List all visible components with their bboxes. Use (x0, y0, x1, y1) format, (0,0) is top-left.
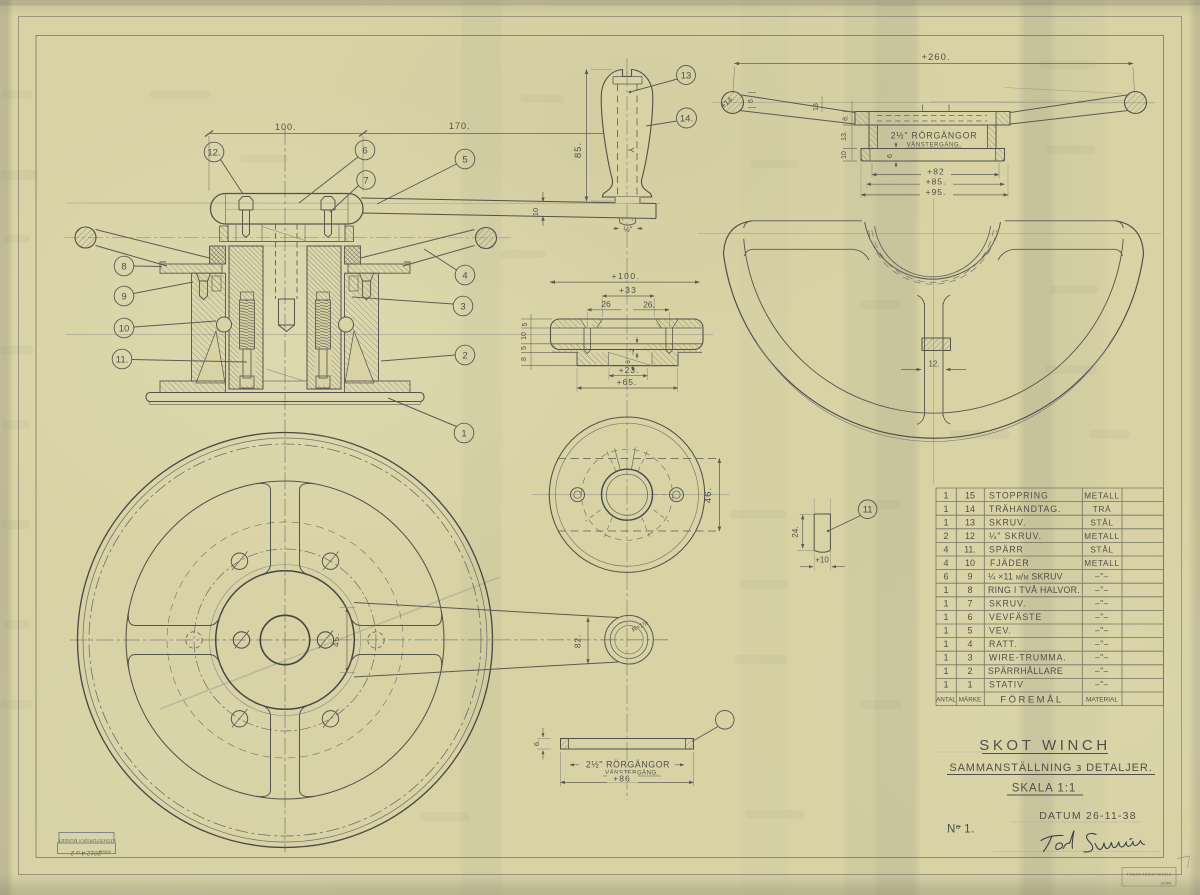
svg-text:METALL: METALL (1084, 492, 1119, 501)
svg-text:10: 10 (119, 324, 130, 335)
svg-text:4: 4 (462, 271, 467, 282)
svg-text:12.: 12. (207, 148, 220, 159)
svg-text:13: 13 (965, 518, 975, 528)
svg-text:12.: 12. (928, 360, 939, 369)
svg-text:DATUM 26-11-38: DATUM 26-11-38 (1039, 810, 1137, 822)
svg-text:1: 1 (943, 653, 948, 663)
svg-text:SPÄRR: SPÄRR (989, 545, 1024, 555)
svg-text:+82: +82 (927, 167, 944, 177)
svg-text:–"–: –"– (1095, 626, 1109, 635)
svg-text:RING I TVÅ HALVOR.: RING I TVÅ HALVOR. (988, 585, 1080, 595)
svg-text:6: 6 (943, 572, 948, 582)
svg-text:11.: 11. (964, 545, 976, 555)
svg-text:No 1.: No 1. (947, 822, 975, 836)
svg-text:RATT.: RATT. (989, 639, 1017, 649)
svg-text:–"–: –"– (1095, 572, 1109, 581)
svg-text:SKOT WINCH: SKOT WINCH (979, 737, 1111, 754)
svg-text:4: 4 (943, 558, 948, 568)
svg-text:15: 15 (965, 491, 975, 501)
svg-text:¼ ×11 M/M SKRUV: ¼ ×11 M/M SKRUV (988, 572, 1063, 582)
svg-text:TRÄHANDTAG.: TRÄHANDTAG. (989, 504, 1061, 514)
svg-text:3xHPA: 3xHPA (1161, 882, 1173, 886)
svg-text:2½" RÖRGÄNGOR: 2½" RÖRGÄNGOR (891, 131, 978, 141)
svg-text:1: 1 (943, 626, 948, 636)
svg-text:6: 6 (967, 612, 972, 622)
svg-text:1: 1 (943, 599, 948, 609)
svg-text:6: 6 (748, 99, 755, 103)
svg-text:TJSUM AKSIKTSHÖL2: TJSUM AKSIKTSHÖL2 (1127, 872, 1173, 877)
svg-text:11.: 11. (116, 355, 129, 366)
svg-text:1: 1 (967, 680, 972, 690)
svg-text:–"–: –"– (1095, 586, 1109, 595)
svg-text:1: 1 (943, 504, 948, 514)
svg-text:45.: 45. (331, 633, 341, 647)
svg-text:2: 2 (462, 351, 467, 362)
svg-text:15: 15 (813, 103, 820, 111)
svg-text:–"–: –"– (1095, 653, 1109, 662)
svg-text:1: 1 (943, 639, 948, 649)
svg-text:6: 6 (362, 146, 367, 157)
svg-text:8: 8 (121, 262, 126, 273)
svg-text:METALL: METALL (1084, 559, 1119, 568)
svg-text:STATIV: STATIV (989, 680, 1024, 690)
svg-text:4: 4 (967, 639, 972, 649)
svg-text:1: 1 (943, 518, 948, 528)
svg-text:14.: 14. (680, 114, 693, 125)
svg-text:6.: 6. (532, 740, 541, 746)
svg-text:5: 5 (462, 155, 467, 166)
svg-text:7: 7 (967, 599, 972, 609)
svg-text:1: 1 (943, 491, 948, 501)
svg-text:MATERIAL: MATERIAL (1086, 697, 1118, 704)
svg-text:SKRUV.: SKRUV. (989, 599, 1026, 609)
svg-text:1: 1 (943, 666, 948, 676)
svg-text:1: 1 (461, 429, 466, 440)
svg-text:METALL: METALL (1084, 532, 1119, 541)
svg-text:FJÄDER: FJÄDER (990, 558, 1030, 568)
svg-text:TRÄ: TRÄ (1093, 504, 1111, 514)
svg-text:3: 3 (460, 302, 465, 313)
svg-text:26.: 26. (643, 300, 655, 310)
svg-text:+33: +33 (619, 285, 637, 295)
svg-text:WIRE-TRUMMA.: WIRE-TRUMMA. (989, 653, 1067, 663)
svg-text:¼" SKRUV.: ¼" SKRUV. (989, 531, 1042, 541)
svg-text:9: 9 (121, 292, 126, 303)
svg-text:8: 8 (521, 357, 528, 361)
svg-text:VÄNSTERGÄNG.: VÄNSTERGÄNG. (907, 142, 962, 149)
svg-text:4: 4 (943, 545, 948, 555)
svg-text:+65.: +65. (617, 377, 638, 387)
svg-text:5: 5 (522, 322, 529, 326)
svg-text:2: 2 (943, 531, 948, 541)
svg-text:2½" RÖRGÄNGOR: 2½" RÖRGÄNGOR (586, 760, 670, 770)
svg-text:3: 3 (967, 653, 972, 663)
svg-text:10: 10 (521, 332, 528, 340)
svg-text:9: 9 (967, 572, 972, 582)
svg-text:MÄRKE: MÄRKE (959, 696, 981, 704)
svg-text:1: 1 (943, 585, 948, 595)
svg-text:14: 14 (965, 504, 975, 514)
svg-text:+86: +86 (613, 774, 630, 784)
svg-text:SAMMANSTÄLLNING з DETALJER.: SAMMANSTÄLLNING з DETALJER. (949, 762, 1152, 774)
svg-text:26: 26 (601, 299, 611, 309)
svg-text:–"–: –"– (1095, 667, 1109, 676)
svg-text:2: 2 (967, 666, 972, 676)
svg-text:2: 2 (629, 348, 636, 352)
svg-text:7: 7 (363, 176, 368, 187)
svg-text:ANTAL: ANTAL (936, 697, 956, 704)
svg-text:SPÄRRHÅLLARE: SPÄRRHÅLLARE (988, 666, 1063, 676)
svg-text:Y: Y (626, 147, 635, 153)
svg-text:1: 1 (943, 612, 948, 622)
svg-text:SKALA 1:1: SKALA 1:1 (1012, 783, 1077, 795)
svg-text:2012:4 и 2: 2012:4 и 2 (70, 849, 102, 856)
svg-text:+85.: +85. (926, 176, 947, 186)
svg-text:+95.: +95. (926, 187, 947, 197)
svg-text:8: 8 (967, 585, 972, 595)
svg-text:FÖREMÅL: FÖREMÅL (1000, 695, 1063, 706)
svg-text:STÅL: STÅL (1090, 518, 1113, 528)
svg-text:5: 5 (521, 346, 528, 350)
svg-text:SJÖHISTORISKA MUSEET: SJÖHISTORISKA MUSEET (58, 838, 116, 843)
svg-text:13.: 13. (841, 131, 848, 141)
svg-text:VEV.: VEV. (989, 626, 1012, 636)
svg-text:85.: 85. (573, 142, 584, 158)
svg-text:24.: 24. (791, 526, 800, 537)
svg-text:10: 10 (531, 208, 540, 216)
svg-text:5: 5 (967, 626, 972, 636)
svg-text:Arkivet: Arkivet (98, 850, 111, 854)
svg-text:12: 12 (965, 531, 975, 541)
svg-text:10: 10 (965, 558, 975, 568)
svg-text:STÅL: STÅL (1090, 545, 1113, 555)
svg-text:+100.: +100. (611, 271, 640, 281)
svg-text:+23.: +23. (619, 365, 640, 375)
svg-text:½": ½" (624, 225, 633, 234)
svg-text:–"–: –"– (1095, 613, 1109, 622)
svg-text:+260.: +260. (921, 52, 950, 63)
svg-text:6: 6 (625, 360, 632, 364)
svg-text:–"–: –"– (1095, 680, 1109, 689)
svg-text:1: 1 (943, 680, 948, 690)
svg-text:VEVFÄSTE: VEVFÄSTE (989, 612, 1042, 622)
svg-text:6: 6 (887, 154, 894, 158)
svg-text:100.: 100. (275, 122, 297, 132)
svg-text:13: 13 (681, 71, 692, 82)
svg-text:8.: 8. (843, 115, 850, 121)
svg-text:10: 10 (841, 151, 848, 159)
svg-text:82.: 82. (573, 634, 583, 648)
svg-text:STOPPRING: STOPPRING (989, 491, 1049, 501)
svg-text:SKRUV.: SKRUV. (989, 518, 1026, 528)
svg-text:–"–: –"– (1095, 599, 1109, 608)
svg-text:–"–: –"– (1095, 640, 1109, 649)
svg-text:46.: 46. (703, 487, 714, 503)
svg-text:+10: +10 (815, 556, 829, 565)
svg-text:170.: 170. (449, 121, 471, 131)
